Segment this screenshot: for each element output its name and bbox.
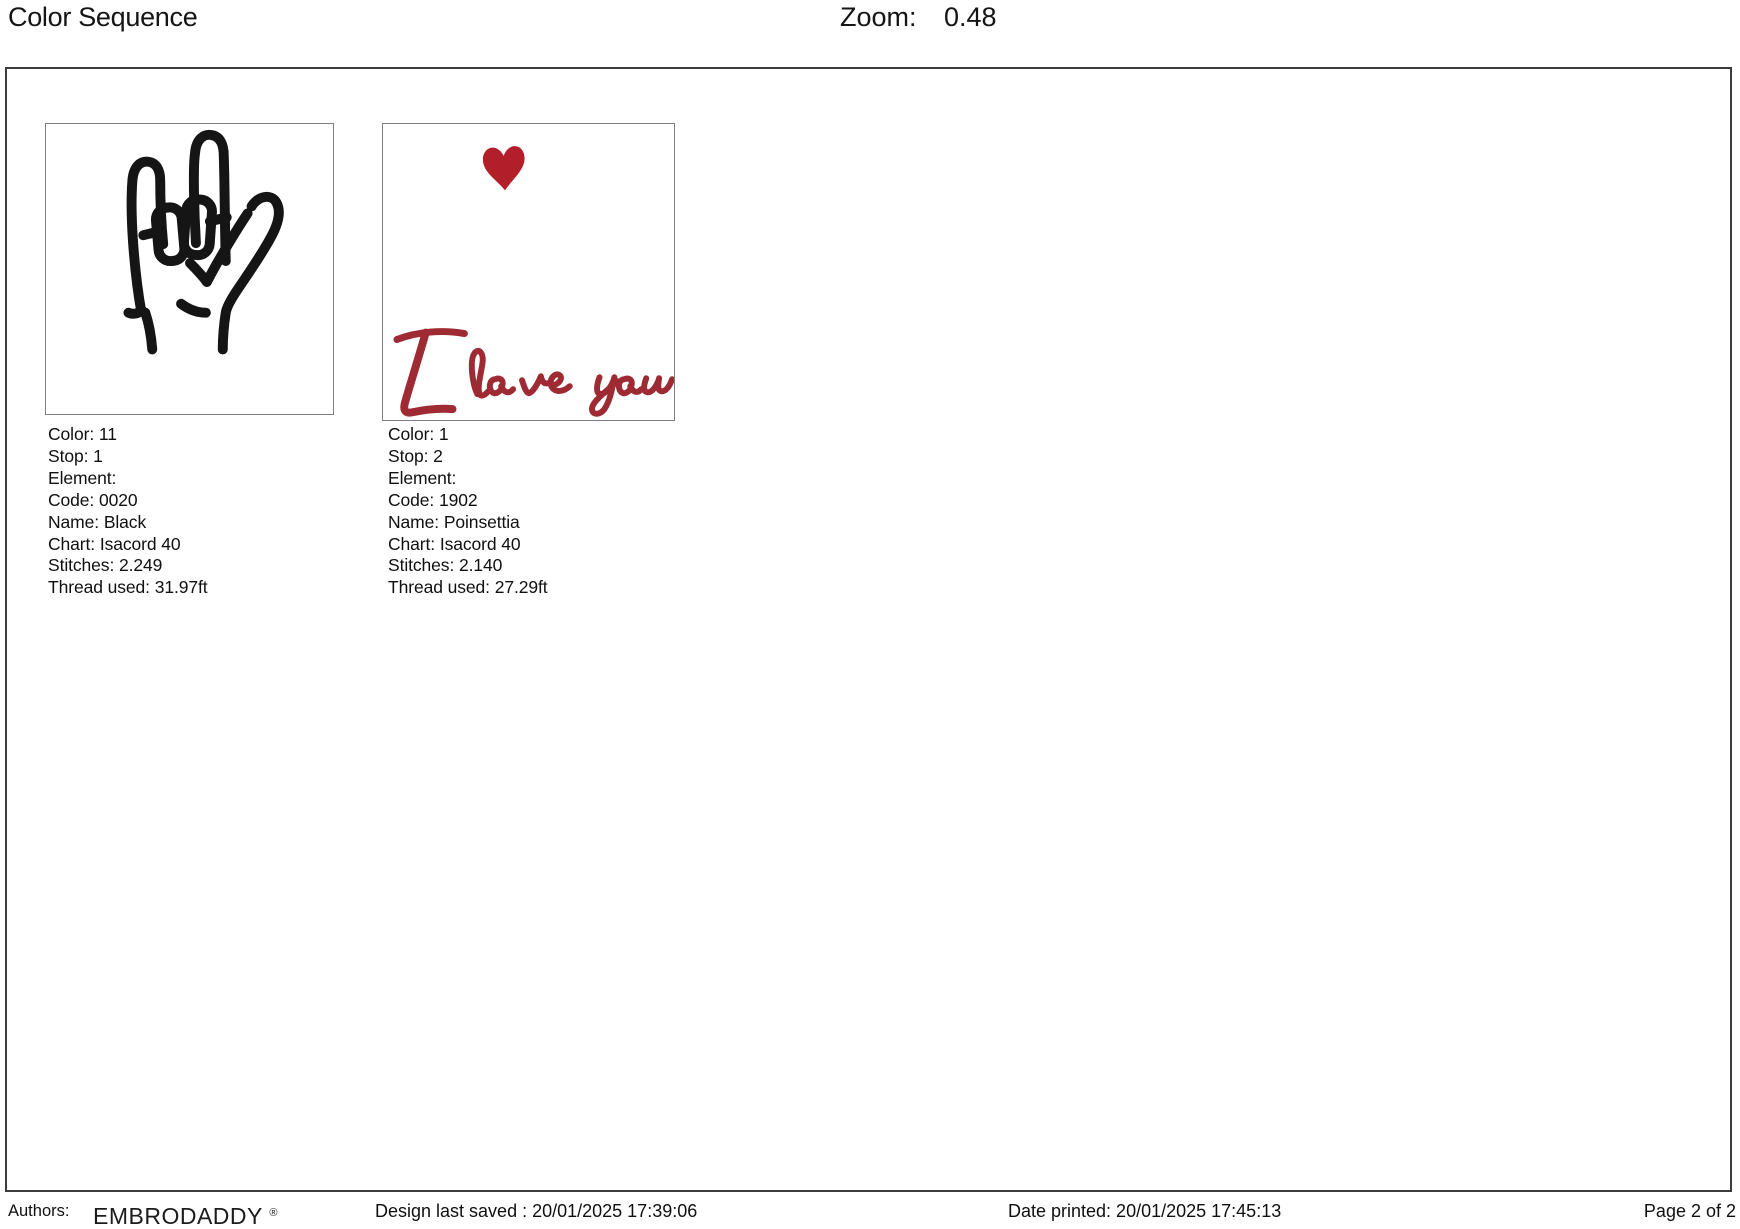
- thread-info-block-2: Color: 1 Stop: 2 Element: Code: 1902 Nam…: [388, 424, 548, 599]
- info-line: Chart: Isacord 40: [48, 534, 208, 556]
- info-label: Thread used:: [48, 577, 150, 597]
- info-label: Element:: [388, 468, 456, 488]
- info-value: 2.140: [459, 555, 502, 575]
- info-label: Chart:: [388, 534, 435, 554]
- info-line: Name: Black: [48, 512, 208, 534]
- info-line: Color: 1: [388, 424, 548, 446]
- brand-text: EMBRODADDY: [93, 1203, 262, 1229]
- info-label: Stitches:: [48, 555, 114, 575]
- info-label: Element:: [48, 468, 116, 488]
- zoom-label: Zoom:: [840, 2, 917, 33]
- info-line: Color: 11: [48, 424, 208, 446]
- brand-name: EMBRODADDY ®: [93, 1203, 277, 1229]
- info-value: Poinsettia: [444, 512, 520, 532]
- info-value: Isacord 40: [100, 534, 181, 554]
- authors-label: Authors:: [8, 1202, 69, 1221]
- date-printed: Date printed: 20/01/2025 17:45:13: [1008, 1201, 1281, 1222]
- info-label: Stop:: [48, 446, 88, 466]
- info-label: Color:: [48, 424, 94, 444]
- info-label: Stitches:: [388, 555, 454, 575]
- hand-line-art: [128, 135, 278, 350]
- info-value: 2: [433, 446, 443, 466]
- page-title: Color Sequence: [8, 2, 197, 33]
- info-value: 1: [439, 424, 449, 444]
- zoom-value: 0.48: [944, 2, 997, 33]
- asl-i-love-you-hand-graphic: [46, 124, 333, 414]
- info-line: Thread used: 27.29ft: [388, 577, 548, 599]
- design-step-thumbnail-1: [45, 123, 334, 415]
- info-value: 27.29ft: [495, 577, 548, 597]
- info-line: Stop: 1: [48, 446, 208, 468]
- info-value: 1902: [439, 490, 478, 510]
- design-step-thumbnail-2: [382, 123, 675, 421]
- info-value: 31.97ft: [155, 577, 208, 597]
- info-line: Element:: [48, 468, 208, 490]
- i-love-you-script-graphic: [397, 332, 672, 414]
- info-label: Code:: [388, 490, 434, 510]
- info-line: Code: 0020: [48, 490, 208, 512]
- color-sequence-page: Color Sequence Zoom: 0.48: [0, 0, 1740, 1229]
- info-line: Element:: [388, 468, 548, 490]
- info-label: Chart:: [48, 534, 95, 554]
- heart-icon: [482, 146, 526, 192]
- info-value: 1: [93, 446, 103, 466]
- design-last-saved: Design last saved : 20/01/2025 17:39:06: [375, 1201, 697, 1222]
- info-value: Black: [104, 512, 146, 532]
- info-line: Name: Poinsettia: [388, 512, 548, 534]
- info-label: Code:: [48, 490, 94, 510]
- page-number: Page 2 of 2: [1644, 1201, 1736, 1222]
- i-love-you-design-graphic: [383, 124, 674, 420]
- info-value: Isacord 40: [440, 534, 521, 554]
- info-line: Stop: 2: [388, 446, 548, 468]
- info-value: 2.249: [119, 555, 162, 575]
- info-label: Name:: [388, 512, 439, 532]
- info-label: Stop:: [388, 446, 428, 466]
- info-label: Color:: [388, 424, 434, 444]
- info-line: Code: 1902: [388, 490, 548, 512]
- info-line: Chart: Isacord 40: [388, 534, 548, 556]
- info-line: Stitches: 2.249: [48, 555, 208, 577]
- info-value: 11: [99, 424, 117, 444]
- info-line: Thread used: 31.97ft: [48, 577, 208, 599]
- info-label: Thread used:: [388, 577, 490, 597]
- info-line: Stitches: 2.140: [388, 555, 548, 577]
- registered-trademark-symbol: ®: [269, 1207, 277, 1219]
- info-value: 0020: [99, 490, 138, 510]
- info-label: Name:: [48, 512, 99, 532]
- thread-info-block-1: Color: 11 Stop: 1 Element: Code: 0020 Na…: [48, 424, 208, 599]
